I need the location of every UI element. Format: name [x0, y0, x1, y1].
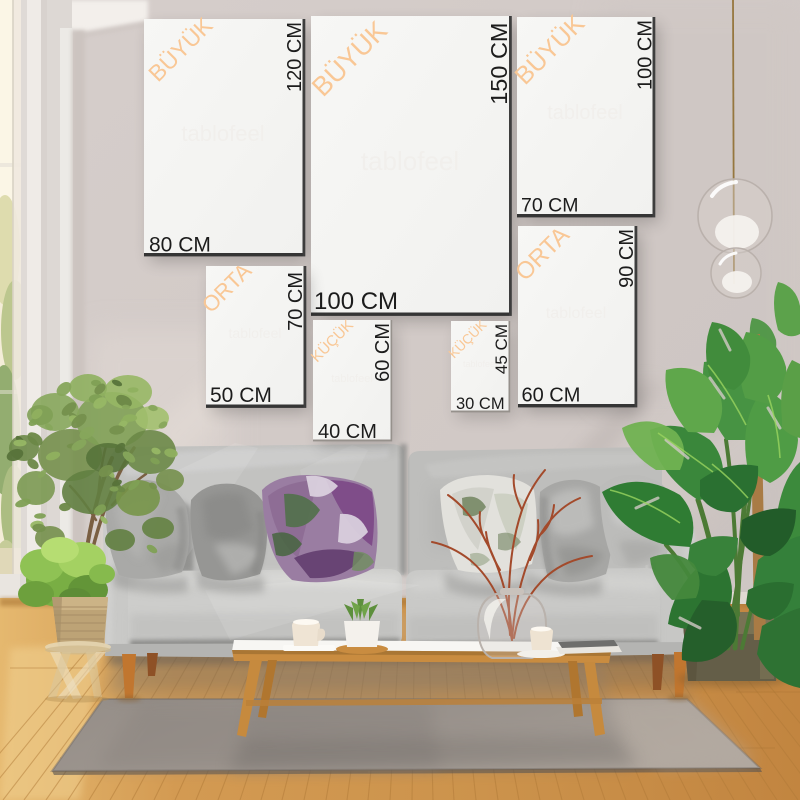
svg-text:70 CM: 70 CM — [521, 195, 578, 217]
svg-text:80 CM: 80 CM — [149, 234, 211, 257]
svg-text:60 CM: 60 CM — [372, 323, 394, 382]
svg-text:tablofeel: tablofeel — [181, 121, 264, 146]
svg-text:tablofeel: tablofeel — [229, 325, 282, 341]
svg-text:50 CM: 50 CM — [210, 384, 272, 407]
svg-text:tablofeel: tablofeel — [331, 373, 373, 385]
svg-text:100 CM: 100 CM — [635, 20, 657, 90]
svg-text:90 CM: 90 CM — [616, 229, 638, 288]
svg-text:tablofeel: tablofeel — [546, 305, 607, 322]
svg-text:30 CM: 30 CM — [456, 395, 505, 413]
svg-text:60 CM: 60 CM — [522, 385, 581, 407]
svg-text:tablofeel: tablofeel — [547, 102, 623, 124]
svg-text:tablofeel: tablofeel — [361, 146, 459, 176]
svg-text:45 CM: 45 CM — [492, 324, 511, 374]
svg-text:150 CM: 150 CM — [486, 23, 512, 105]
svg-text:120 CM: 120 CM — [284, 22, 306, 92]
svg-text:100 CM: 100 CM — [314, 288, 398, 315]
svg-text:70 CM: 70 CM — [285, 272, 307, 331]
svg-text:40 CM: 40 CM — [318, 421, 377, 443]
